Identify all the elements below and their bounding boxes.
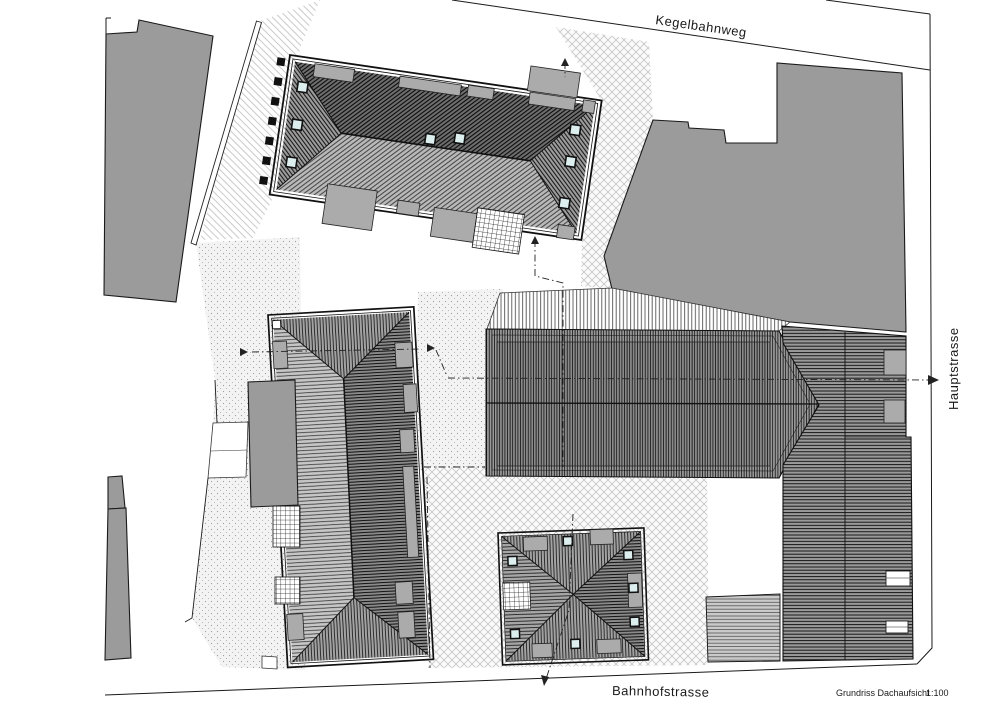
site-plan-canvas: Kegelbahnweg Hauptstrasse Bahnhofstrasse…	[0, 0, 998, 706]
roof-trellis-north	[472, 208, 524, 254]
roof-trellis-west-2	[275, 577, 300, 604]
boundary-steps	[208, 422, 248, 478]
neighbor-annex-west	[248, 380, 298, 507]
street-label-hauptstrasse: Hauptstrasse	[946, 327, 961, 410]
title-block: Grundriss Dachaufsicht 1:100	[836, 688, 949, 698]
roof-trellis-pavilion	[503, 582, 531, 610]
neighbor-building-west-upper	[108, 476, 125, 509]
building-pavilion-roof	[498, 528, 649, 665]
west-building-step	[262, 656, 277, 669]
street-label-bahnhofstrasse: Bahnhofstrasse	[612, 683, 710, 700]
roof-trellis-west-1	[273, 506, 300, 547]
site-plan-drawing: Kegelbahnweg Hauptstrasse Bahnhofstrasse…	[0, 0, 998, 706]
drawing-title: Grundriss Dachaufsicht	[836, 688, 930, 698]
neighbor-building-west-lower	[105, 508, 131, 660]
lean-to-roof	[706, 594, 780, 662]
drawing-scale: 1:100	[926, 688, 949, 698]
